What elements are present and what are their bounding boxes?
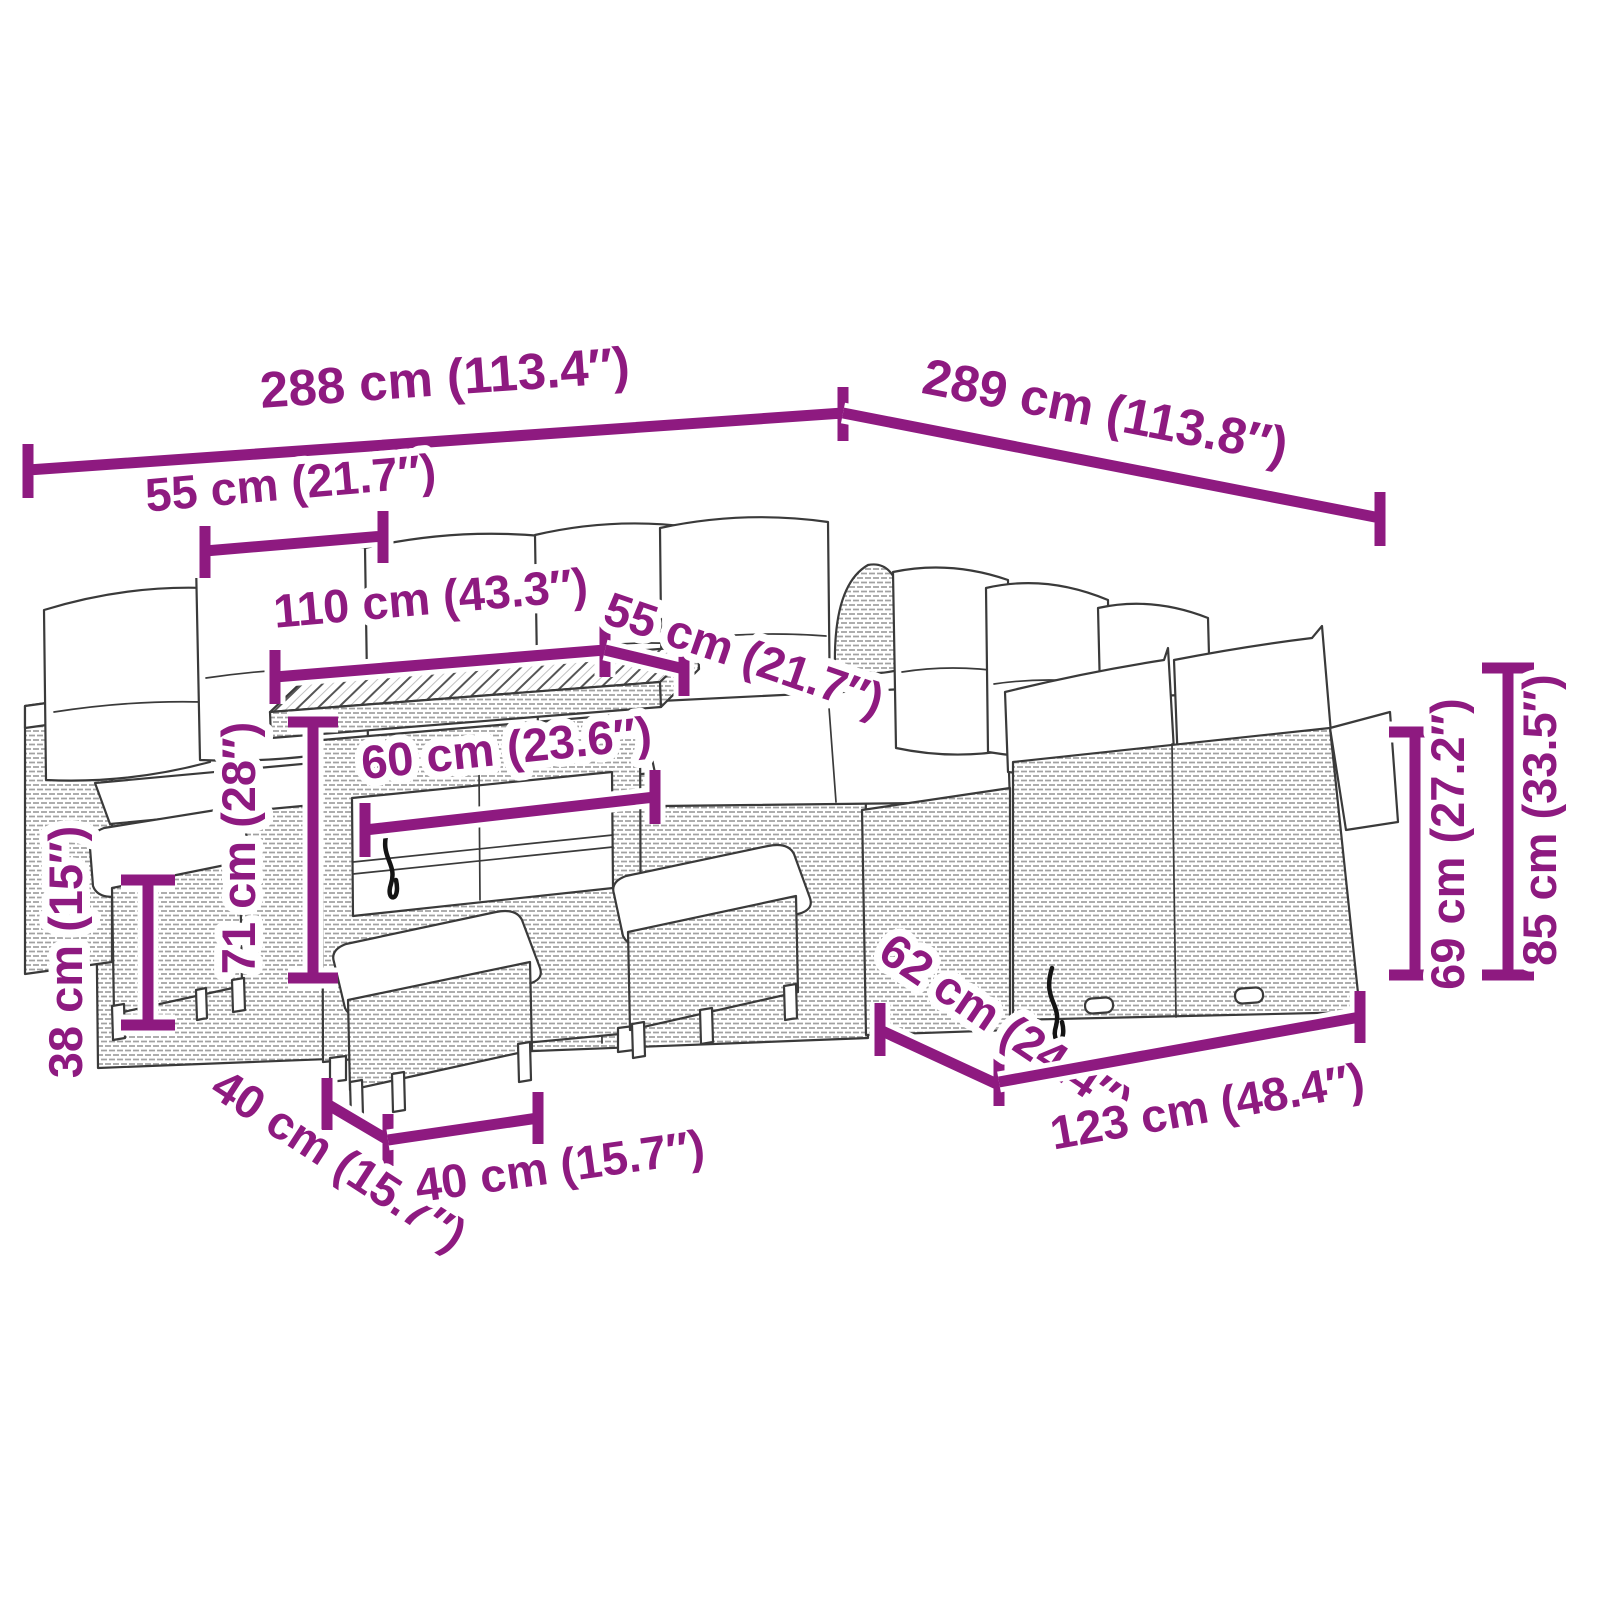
- dim-label: 85 cm (33.5″): [1513, 674, 1566, 966]
- dim-total-height: 85 cm (33.5″): [1482, 668, 1566, 975]
- dim-back-width-right: 289 cm (113.8″): [843, 348, 1380, 546]
- diagram-svg: 288 cm (113.4″) 289 cm (113.8″) 55 cm (2…: [0, 0, 1600, 1600]
- dimension-diagram: 288 cm (113.4″) 289 cm (113.8″) 55 cm (2…: [0, 0, 1600, 1600]
- dim-label: 288 cm (113.4″): [258, 336, 631, 419]
- stool-center: [333, 911, 541, 1118]
- dim-stool-width: 40 cm (15.7″): [388, 1092, 708, 1212]
- dim-label: 69 cm (27.2″): [1421, 698, 1474, 990]
- bench-armrest-top: [1330, 712, 1398, 830]
- dim-label: 71 cm (28″): [212, 722, 265, 974]
- back-pillow: [44, 588, 210, 781]
- bench-back-panel: [1013, 728, 1360, 1020]
- dim-backrest-height: 69 cm (27.2″): [1389, 698, 1474, 990]
- dim-label: 38 cm (15″): [39, 826, 92, 1078]
